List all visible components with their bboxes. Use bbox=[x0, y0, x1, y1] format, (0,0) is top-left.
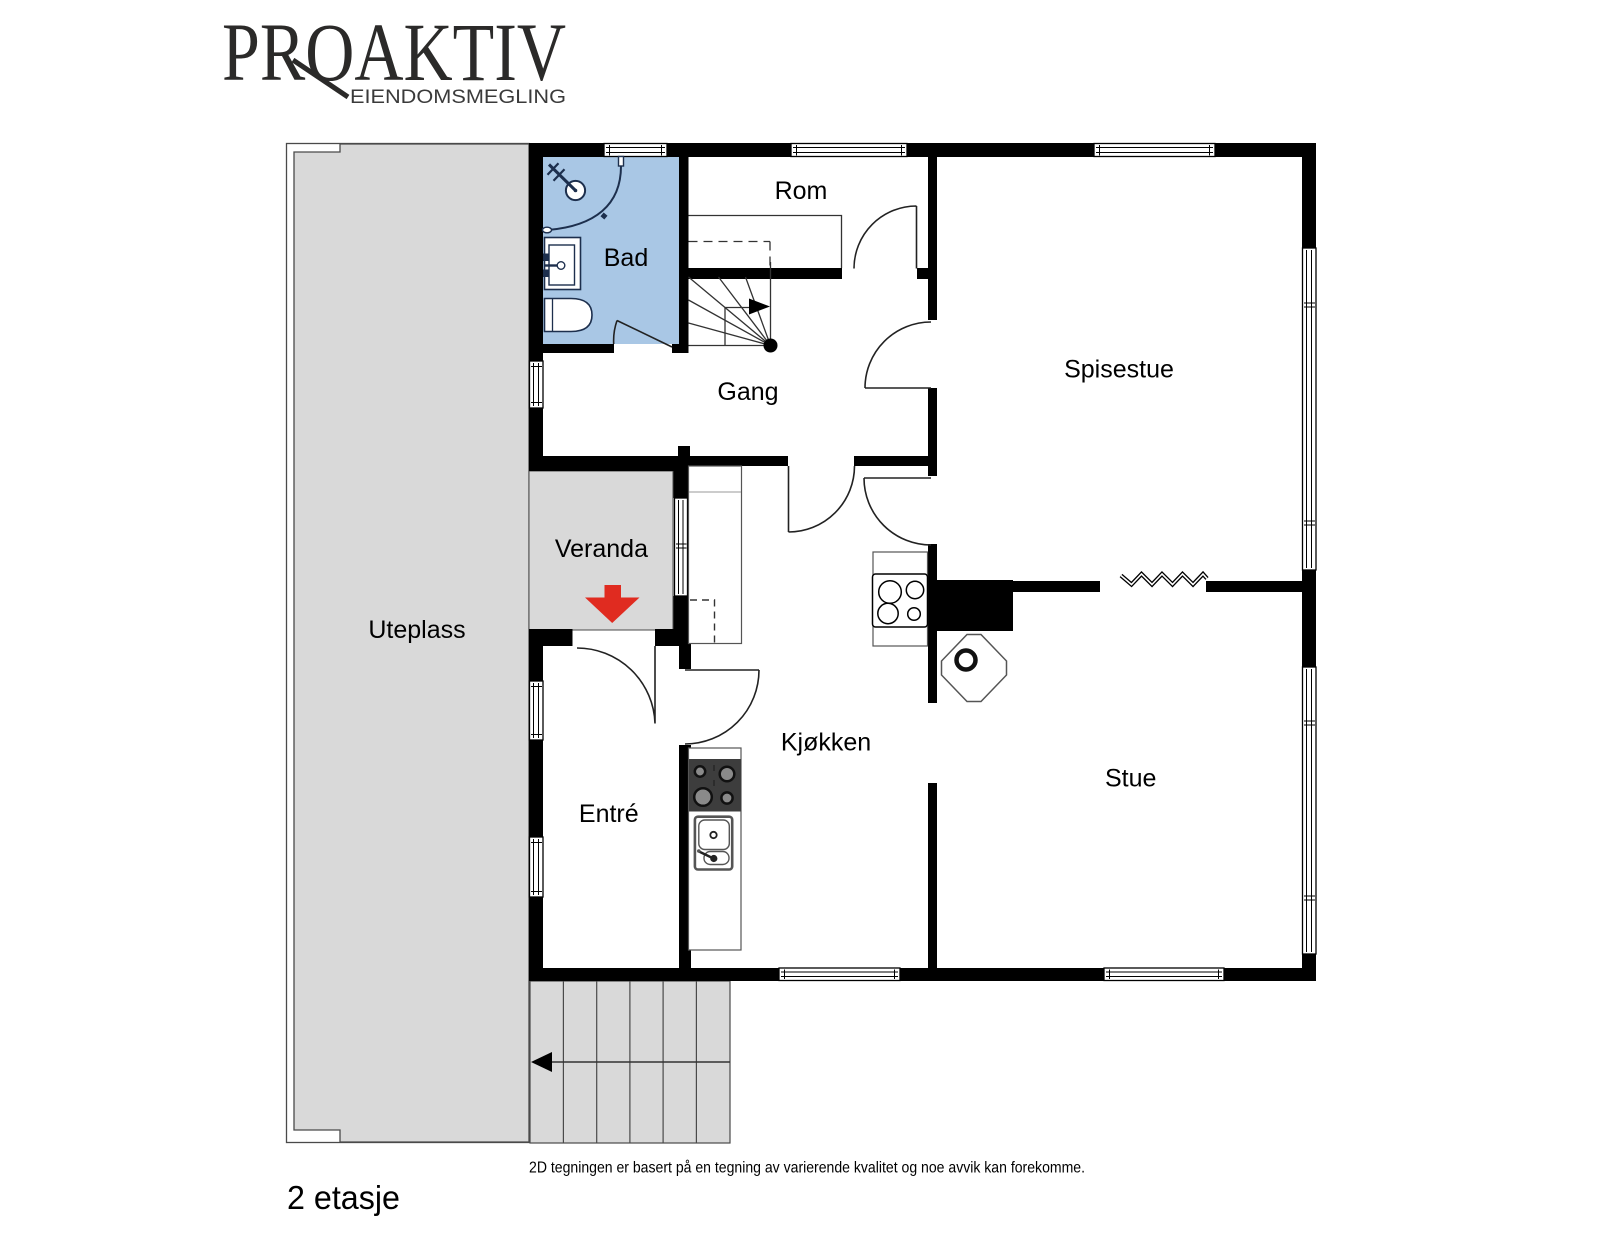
svg-text:2D tegningen er basert på en t: 2D tegningen er basert på en tegning av … bbox=[529, 1159, 1085, 1177]
svg-text:Stue: Stue bbox=[1105, 765, 1156, 793]
svg-text:Bad: Bad bbox=[604, 244, 648, 272]
svg-text:Veranda: Veranda bbox=[555, 535, 648, 563]
svg-text:Kjøkken: Kjøkken bbox=[781, 729, 871, 757]
svg-text:Uteplass: Uteplass bbox=[368, 616, 465, 644]
svg-text:Rom: Rom bbox=[775, 177, 828, 205]
svg-text:2 etasje: 2 etasje bbox=[287, 1180, 400, 1217]
svg-text:EIENDOMSMEGLING: EIENDOMSMEGLING bbox=[350, 87, 566, 108]
svg-text:Gang: Gang bbox=[717, 378, 778, 406]
svg-text:Entré: Entré bbox=[579, 800, 639, 828]
svg-text:PROAKTIV: PROAKTIV bbox=[222, 6, 566, 98]
svg-text:Spisestue: Spisestue bbox=[1064, 356, 1174, 384]
